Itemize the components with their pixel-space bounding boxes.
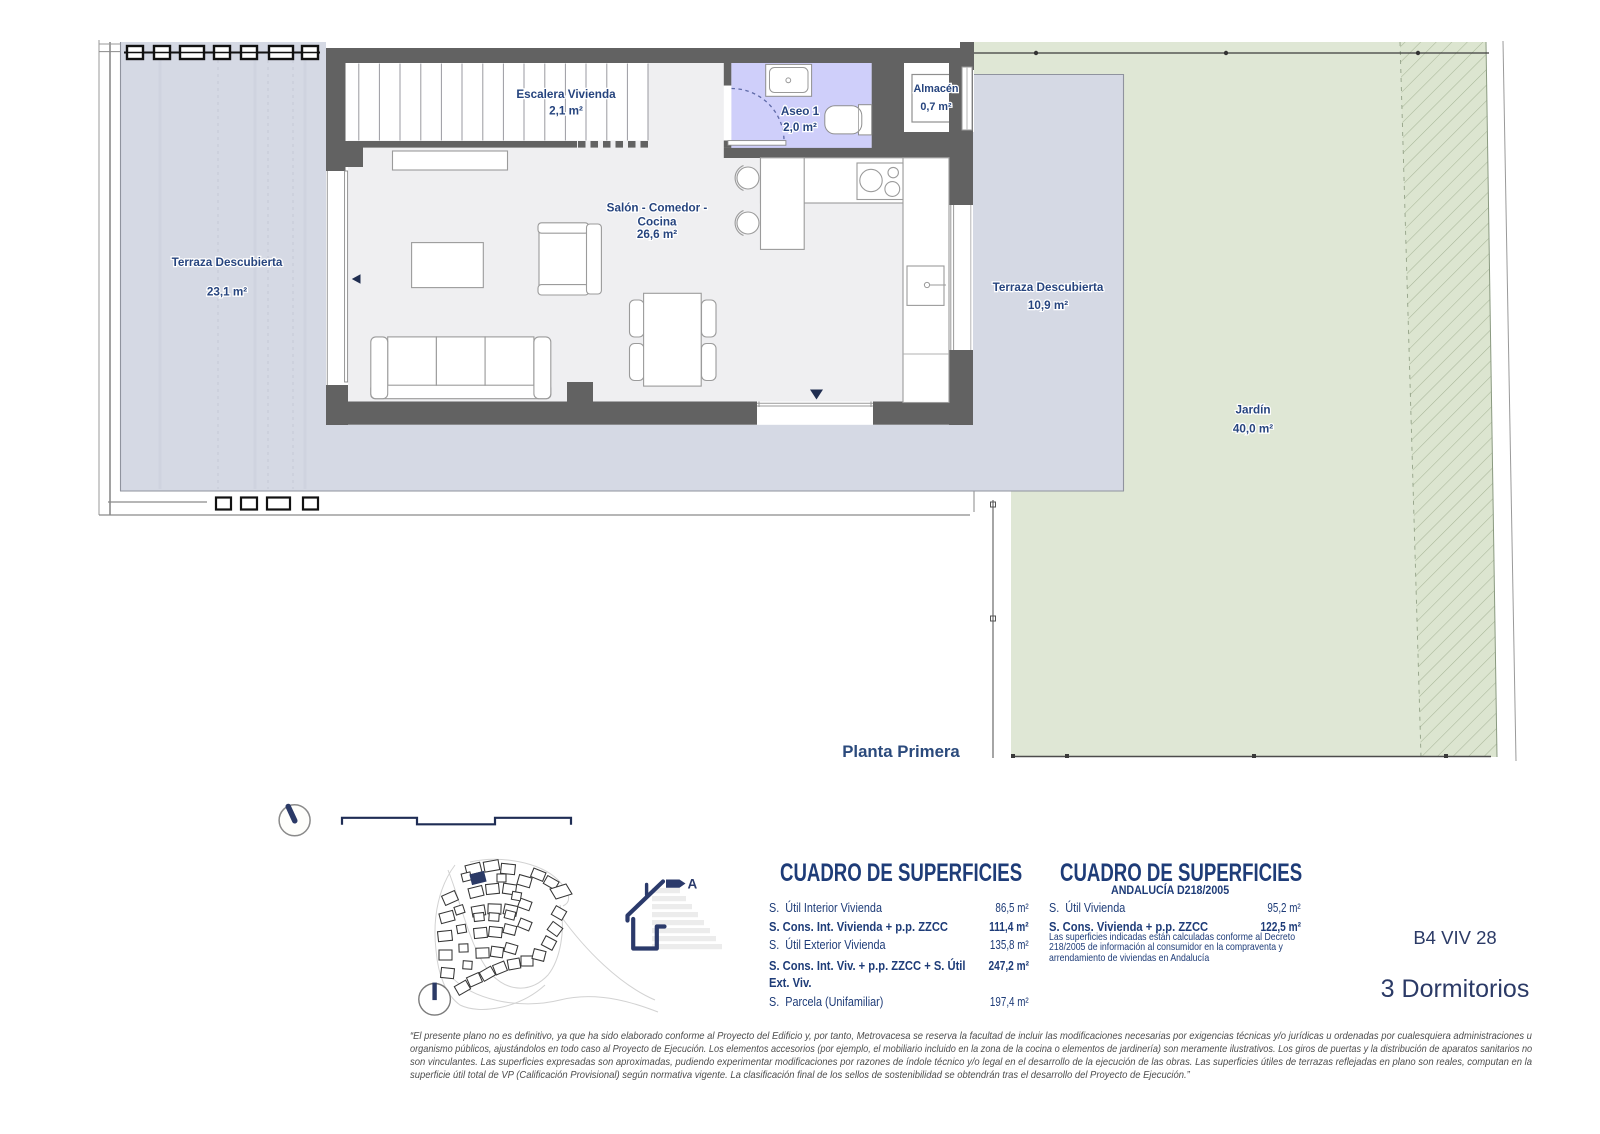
svg-text:Terraza Descubierta: Terraza Descubierta (993, 281, 1104, 294)
svg-text:Terraza Descubierta: Terraza Descubierta (172, 256, 283, 269)
svg-text:Escalera Vivienda: Escalera Vivienda (516, 88, 616, 101)
svg-text:Planta Primera: Planta Primera (842, 742, 960, 761)
svg-text:A: A (688, 877, 698, 892)
svg-text:23,1 m²: 23,1 m² (207, 286, 247, 299)
svg-text:26,6 m²: 26,6 m² (637, 228, 677, 241)
svg-text:10,9 m²: 10,9 m² (1028, 299, 1068, 312)
svg-text:Aseo 1: Aseo 1 (781, 105, 820, 118)
svg-text:2,1 m²: 2,1 m² (549, 105, 583, 118)
svg-text:Almacén: Almacén (913, 83, 958, 95)
svg-text:Jardín: Jardín (1235, 404, 1270, 417)
svg-text:Salón - Comedor -: Salón - Comedor - (607, 202, 708, 215)
svg-text:Cocina: Cocina (638, 216, 677, 229)
svg-text:0,7 m²: 0,7 m² (920, 101, 952, 113)
svg-text:2,0 m²: 2,0 m² (783, 121, 817, 134)
svg-text:40,0 m²: 40,0 m² (1233, 423, 1273, 436)
